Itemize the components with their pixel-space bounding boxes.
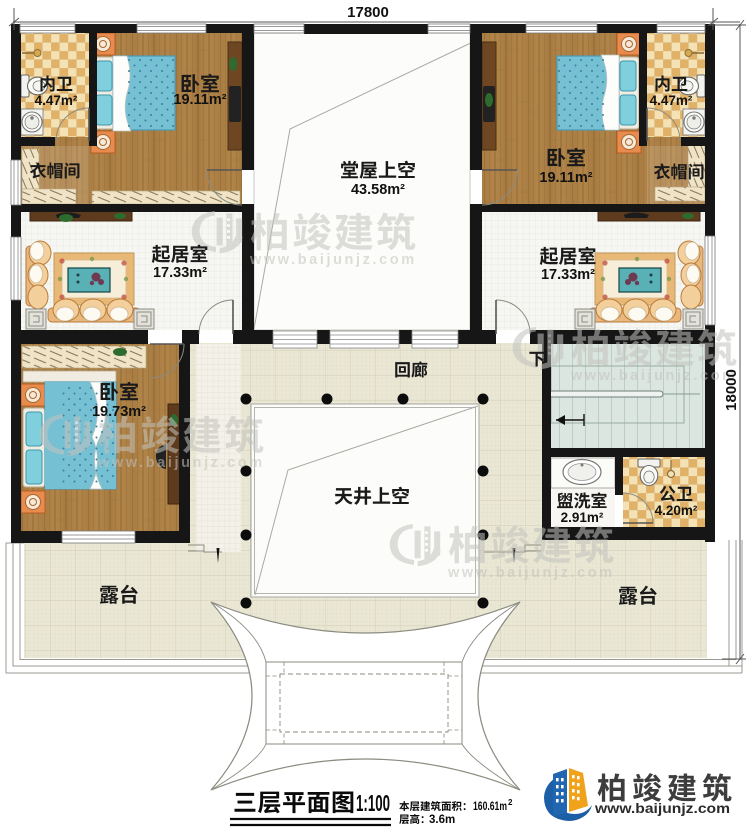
svg-text:4.47m²: 4.47m² [650, 93, 693, 108]
svg-text:3.6m: 3.6m [429, 814, 455, 826]
svg-text:160.61m: 160.61m [473, 801, 507, 813]
svg-text:2: 2 [508, 798, 513, 807]
svg-text:17.33m²: 17.33m² [153, 265, 207, 281]
svg-text:www.baijunjz.com: www.baijunjz.com [570, 368, 738, 384]
svg-text:www.baijunjz.com: www.baijunjz.com [97, 455, 265, 471]
svg-text:43.58m²: 43.58m² [351, 182, 405, 198]
svg-text:www.baijunjz.com: www.baijunjz.com [594, 800, 730, 816]
svg-text:19.11m²: 19.11m² [539, 170, 592, 186]
svg-text:17800: 17800 [347, 4, 389, 21]
svg-text:2.91m²: 2.91m² [561, 510, 604, 525]
svg-text:www.baijunjz.com: www.baijunjz.com [447, 565, 615, 581]
svg-text:4.20m²: 4.20m² [655, 503, 698, 518]
svg-text:1:100: 1:100 [356, 790, 390, 816]
svg-text:4.47m²: 4.47m² [35, 93, 78, 108]
svg-text:18000: 18000 [723, 369, 740, 411]
svg-text:www.baijunjz.com: www.baijunjz.com [249, 252, 417, 268]
svg-text:19.11m²: 19.11m² [173, 92, 226, 108]
svg-text:17.33m²: 17.33m² [541, 267, 595, 283]
svg-text:19.73m²: 19.73m² [92, 404, 146, 420]
